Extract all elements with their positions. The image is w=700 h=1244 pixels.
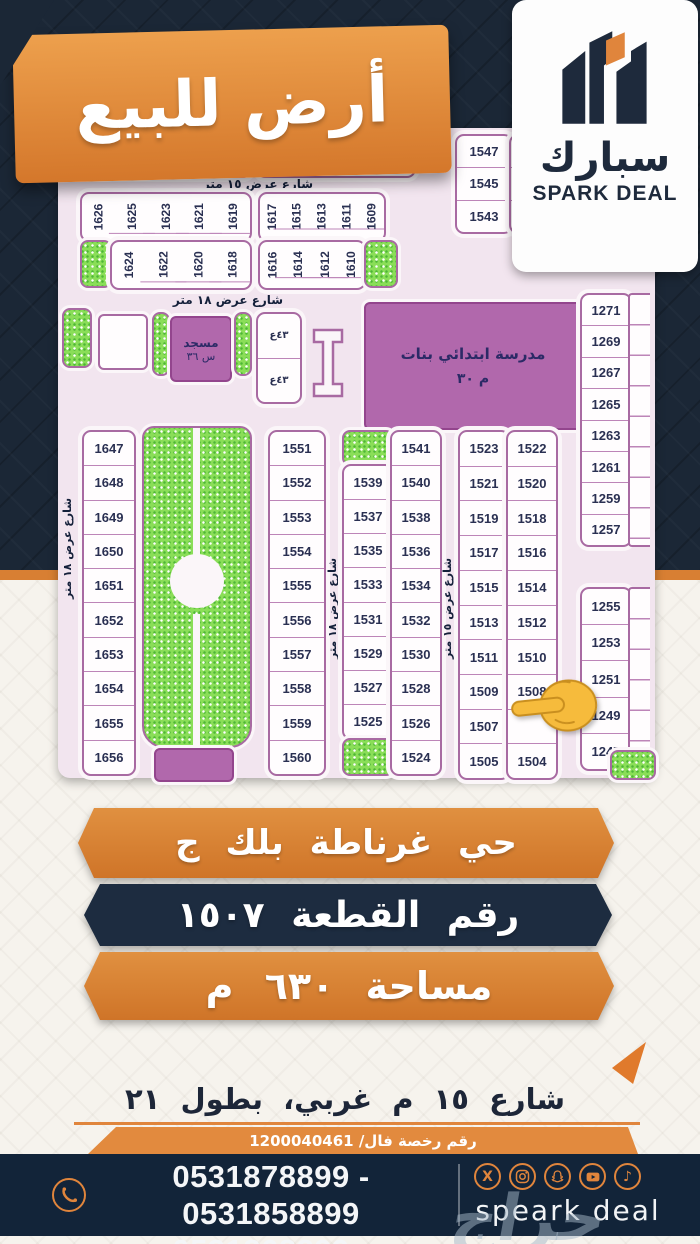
plot-number: 1534 [392, 568, 440, 602]
plot-number: 1554 [270, 534, 324, 568]
area-banner: مساحة ٦٣٠ م [84, 952, 614, 1020]
plot-column-1271: 12711269126712651263126112591257 [580, 293, 632, 547]
plot-number: 1267 [582, 357, 630, 388]
plot-number: 1528 [392, 671, 440, 705]
street-label-15m-vertical: شارع عرض ١٥ متر [440, 508, 456, 708]
plot-number: 1524 [392, 740, 440, 774]
plot-number: ٤٣ع [258, 358, 300, 403]
plot-number: 1536 [392, 534, 440, 568]
plot-column-1551: 1551155215531554155515561557155815591560 [268, 430, 326, 776]
plot-number: 1656 [84, 740, 134, 774]
plot-number: 1532 [392, 602, 440, 636]
plot-number: 1507 [460, 709, 508, 744]
plot-number: 1651 [84, 568, 134, 602]
plot-number: 1518 [508, 500, 556, 535]
phone-line-1[interactable]: 0531878899 - 0531858899 [96, 1158, 446, 1232]
plot-number: 1521 [460, 466, 508, 501]
park-path [193, 428, 200, 556]
poster: 162162163163163 163163164164164 شارع عرض… [0, 0, 700, 1244]
empty-block [98, 314, 148, 370]
footer-divider [458, 1164, 460, 1226]
plot-number: 1618 [210, 248, 252, 283]
brand-handle: speark deal [468, 1194, 668, 1227]
plot-column-1647: 1647164816491650165116521653165416551656 [82, 430, 136, 776]
plot-number: 1514 [508, 570, 556, 605]
plot-number: 1560 [270, 740, 324, 774]
footer-bar: 0531878899 - 0531858899 0531868899 - 053… [0, 1154, 700, 1236]
plot-column-clipped [628, 587, 650, 771]
plot-number: 1555 [270, 568, 324, 602]
plot-number: 1526 [392, 705, 440, 739]
school-block: مدرسة ابتدائي بنات م ٣٠ [364, 302, 582, 430]
plot-number: 1538 [392, 500, 440, 534]
plot-number: 1537 [344, 499, 392, 533]
plot-number-banner: رقم القطعة ١٥٠٧ [84, 884, 612, 946]
district-text: حي غرناطة بلك ج [175, 823, 517, 863]
park [152, 312, 170, 376]
plot-number: 1511 [460, 639, 508, 674]
park [234, 312, 252, 376]
plot-number: 1654 [84, 671, 134, 705]
plot-number: 1531 [344, 602, 392, 636]
plot-number: 1545 [457, 167, 511, 199]
plot-number: 1510 [508, 639, 556, 674]
park [364, 240, 398, 288]
logo-card: سبارك SPARK DEAL [512, 0, 698, 272]
plot-number: 1541 [392, 432, 440, 465]
park [610, 750, 656, 780]
park [342, 430, 394, 466]
plot-number: 1552 [270, 465, 324, 499]
school-size-label: م ٣٠ [457, 371, 489, 387]
plot-number: 1557 [270, 637, 324, 671]
plot-number: 1551 [270, 432, 324, 465]
plot-number: 1539 [344, 466, 392, 499]
tiktok-icon[interactable]: ♪ [614, 1163, 641, 1190]
license-text: رقم رخصة فال/ 1200040461 [249, 1132, 477, 1150]
plot-number: 1547 [457, 136, 511, 167]
plot-number: 1652 [84, 602, 134, 636]
plot-number: 1263 [582, 420, 630, 451]
mosque-block: مسجد س ٣٦ [170, 316, 232, 382]
plot-number: 1522 [508, 432, 556, 466]
plot-number: 1253 [582, 624, 630, 660]
note-underline [74, 1122, 640, 1125]
plot-number: 1649 [84, 500, 134, 534]
plot-number: 1255 [582, 589, 630, 624]
street-note: شارع ١٥ م غربي، بطول ٢١ [40, 1078, 650, 1120]
plot-number: 1513 [460, 605, 508, 640]
pointing-hand-icon [505, 669, 603, 740]
plot-number: 1655 [84, 705, 134, 739]
plot-number: 1647 [84, 432, 134, 465]
phone-line-2[interactable]: 0531868899 - 0531848899 [96, 1232, 446, 1244]
plot-number: ٤٣ع [258, 314, 300, 358]
plot-row-1626: 16261625162316211619 [80, 192, 252, 242]
park [342, 738, 394, 776]
spark-deal-building-icon [546, 26, 664, 130]
street-note-text: شارع ١٥ م غربي، بطول ٢١ [125, 1082, 565, 1116]
park-path [193, 614, 200, 746]
street-label-18m-vertical: شارع عرض ١٨ متر [324, 508, 342, 708]
plot-number: 1265 [582, 388, 630, 419]
plot-number: 1505 [460, 743, 508, 778]
plot-number: 1653 [84, 637, 134, 671]
plot-number: 1529 [344, 636, 392, 670]
plot-number: 1504 [508, 743, 556, 778]
plot-column-1541: 1541154015381536153415321530152815261524 [390, 430, 442, 776]
roundabout [170, 554, 224, 608]
plot-number: 1556 [270, 602, 324, 636]
street-label-18m: شارع عرض ١٨ متر [108, 293, 348, 307]
title-banner: أرض للبيع [12, 25, 451, 184]
plot-number: 1533 [344, 567, 392, 601]
snapchat-icon[interactable] [544, 1163, 571, 1190]
title-text: أرض للبيع [75, 63, 390, 145]
plot-number: 1610 [328, 252, 366, 278]
plot-number: 1543 [457, 200, 511, 232]
plot-number: 1559 [270, 705, 324, 739]
youtube-icon[interactable] [579, 1163, 606, 1190]
plot-number: 1648 [84, 465, 134, 499]
plot-number: 1530 [392, 637, 440, 671]
logo-english-text: SPARK DEAL [533, 182, 678, 206]
x-twitter-icon[interactable]: X [474, 1163, 501, 1190]
license-banner: رقم رخصة فال/ 1200040461 [88, 1127, 638, 1154]
plot-row-1617: 16171615161316111609 [258, 192, 386, 242]
phone-numbers[interactable]: 0531878899 - 0531858899 0531868899 - 053… [96, 1158, 446, 1244]
plot-row-1624: 1624162216201618 [110, 240, 252, 290]
plot-number: 1619 [210, 200, 252, 234]
park [62, 308, 92, 368]
instagram-icon[interactable] [509, 1163, 536, 1190]
park [80, 240, 112, 288]
mosque-size-label: س ٣٦ [187, 350, 216, 363]
plot-number: 1523 [460, 432, 508, 466]
plot-number: 1525 [344, 704, 392, 738]
district-banner: حي غرناطة بلك ج [78, 808, 614, 878]
utility-block: ٤٣ع٤٣ع [256, 312, 302, 404]
plot-number: 1650 [84, 534, 134, 568]
plot-number: 1609 [349, 205, 387, 230]
purple-block [154, 748, 234, 782]
plot-number: 1527 [344, 670, 392, 704]
plot-number: 1271 [582, 295, 630, 325]
plot-number: 1553 [270, 500, 324, 534]
plot-column-1523: 1523152115191517151515131511150915071505 [458, 430, 510, 780]
plot-number: 1259 [582, 482, 630, 513]
plot-row-1616: 1616161416121610 [258, 240, 366, 290]
plot-number: 1520 [508, 466, 556, 501]
plot-number: 1515 [460, 570, 508, 605]
plot-number: 1512 [508, 605, 556, 640]
street-label-18m-vertical: شارع عرض ١٨ متر [56, 458, 80, 638]
road-connector [306, 324, 350, 402]
plot-number: 1261 [582, 451, 630, 482]
plot-number: 1509 [460, 674, 508, 709]
school-label: مدرسة ابتدائي بنات [401, 345, 546, 363]
plot-block-1547: 154715451543 [455, 134, 513, 234]
plot-number: 1540 [392, 465, 440, 499]
plot-number-text: رقم القطعة ١٥٠٧ [177, 895, 519, 936]
plot-number: 1516 [508, 535, 556, 570]
plot-number: 1519 [460, 500, 508, 535]
area-text: مساحة ٦٣٠ م [206, 964, 493, 1008]
plot-number: 1269 [582, 325, 630, 356]
phone-icon [52, 1178, 86, 1212]
plot-number: 1517 [460, 535, 508, 570]
park-strip [142, 426, 252, 748]
plot-number: 1535 [344, 533, 392, 567]
plot-number: 1558 [270, 671, 324, 705]
mosque-label: مسجد [183, 336, 218, 350]
plot-column-clipped [628, 293, 650, 547]
social-icons: X ♪ [474, 1163, 641, 1190]
plot-column-1539: 15391537153515331531152915271525 [342, 464, 394, 740]
plot-number: 1257 [582, 514, 630, 545]
logo-arabic-text: سبارك [540, 138, 670, 178]
